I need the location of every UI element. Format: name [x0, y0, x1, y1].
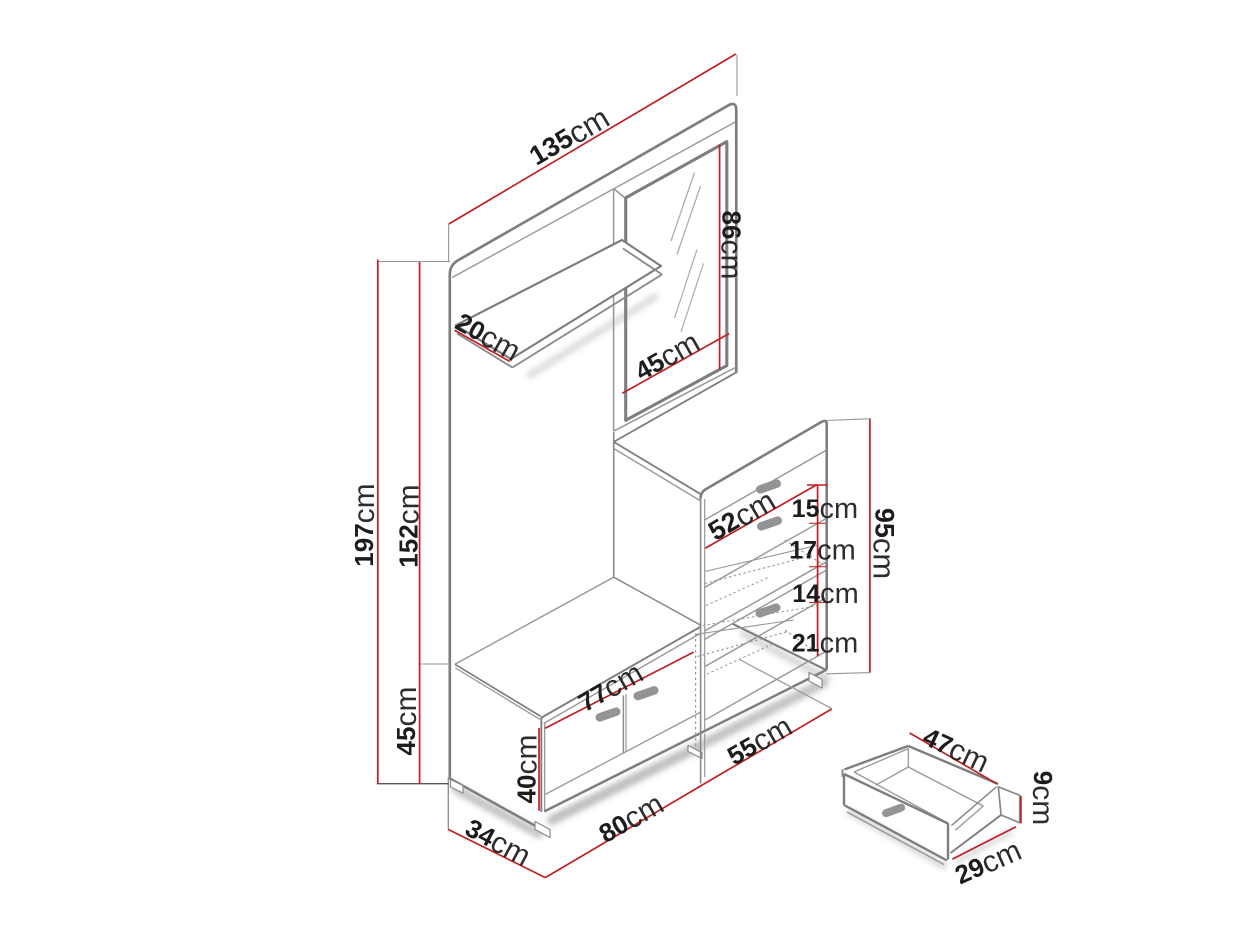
svg-text:21cm: 21cm — [792, 628, 858, 660]
svg-text:45cm: 45cm — [390, 687, 423, 756]
svg-text:86cm: 86cm — [715, 211, 748, 280]
svg-text:40cm: 40cm — [510, 735, 543, 804]
svg-text:152cm: 152cm — [392, 484, 425, 567]
svg-text:197cm: 197cm — [348, 483, 381, 566]
svg-text:17cm: 17cm — [789, 535, 855, 567]
svg-text:14cm: 14cm — [792, 578, 858, 610]
svg-text:95cm: 95cm — [867, 508, 902, 579]
svg-text:9cm: 9cm — [1027, 771, 1060, 825]
svg-text:15cm: 15cm — [792, 493, 858, 525]
